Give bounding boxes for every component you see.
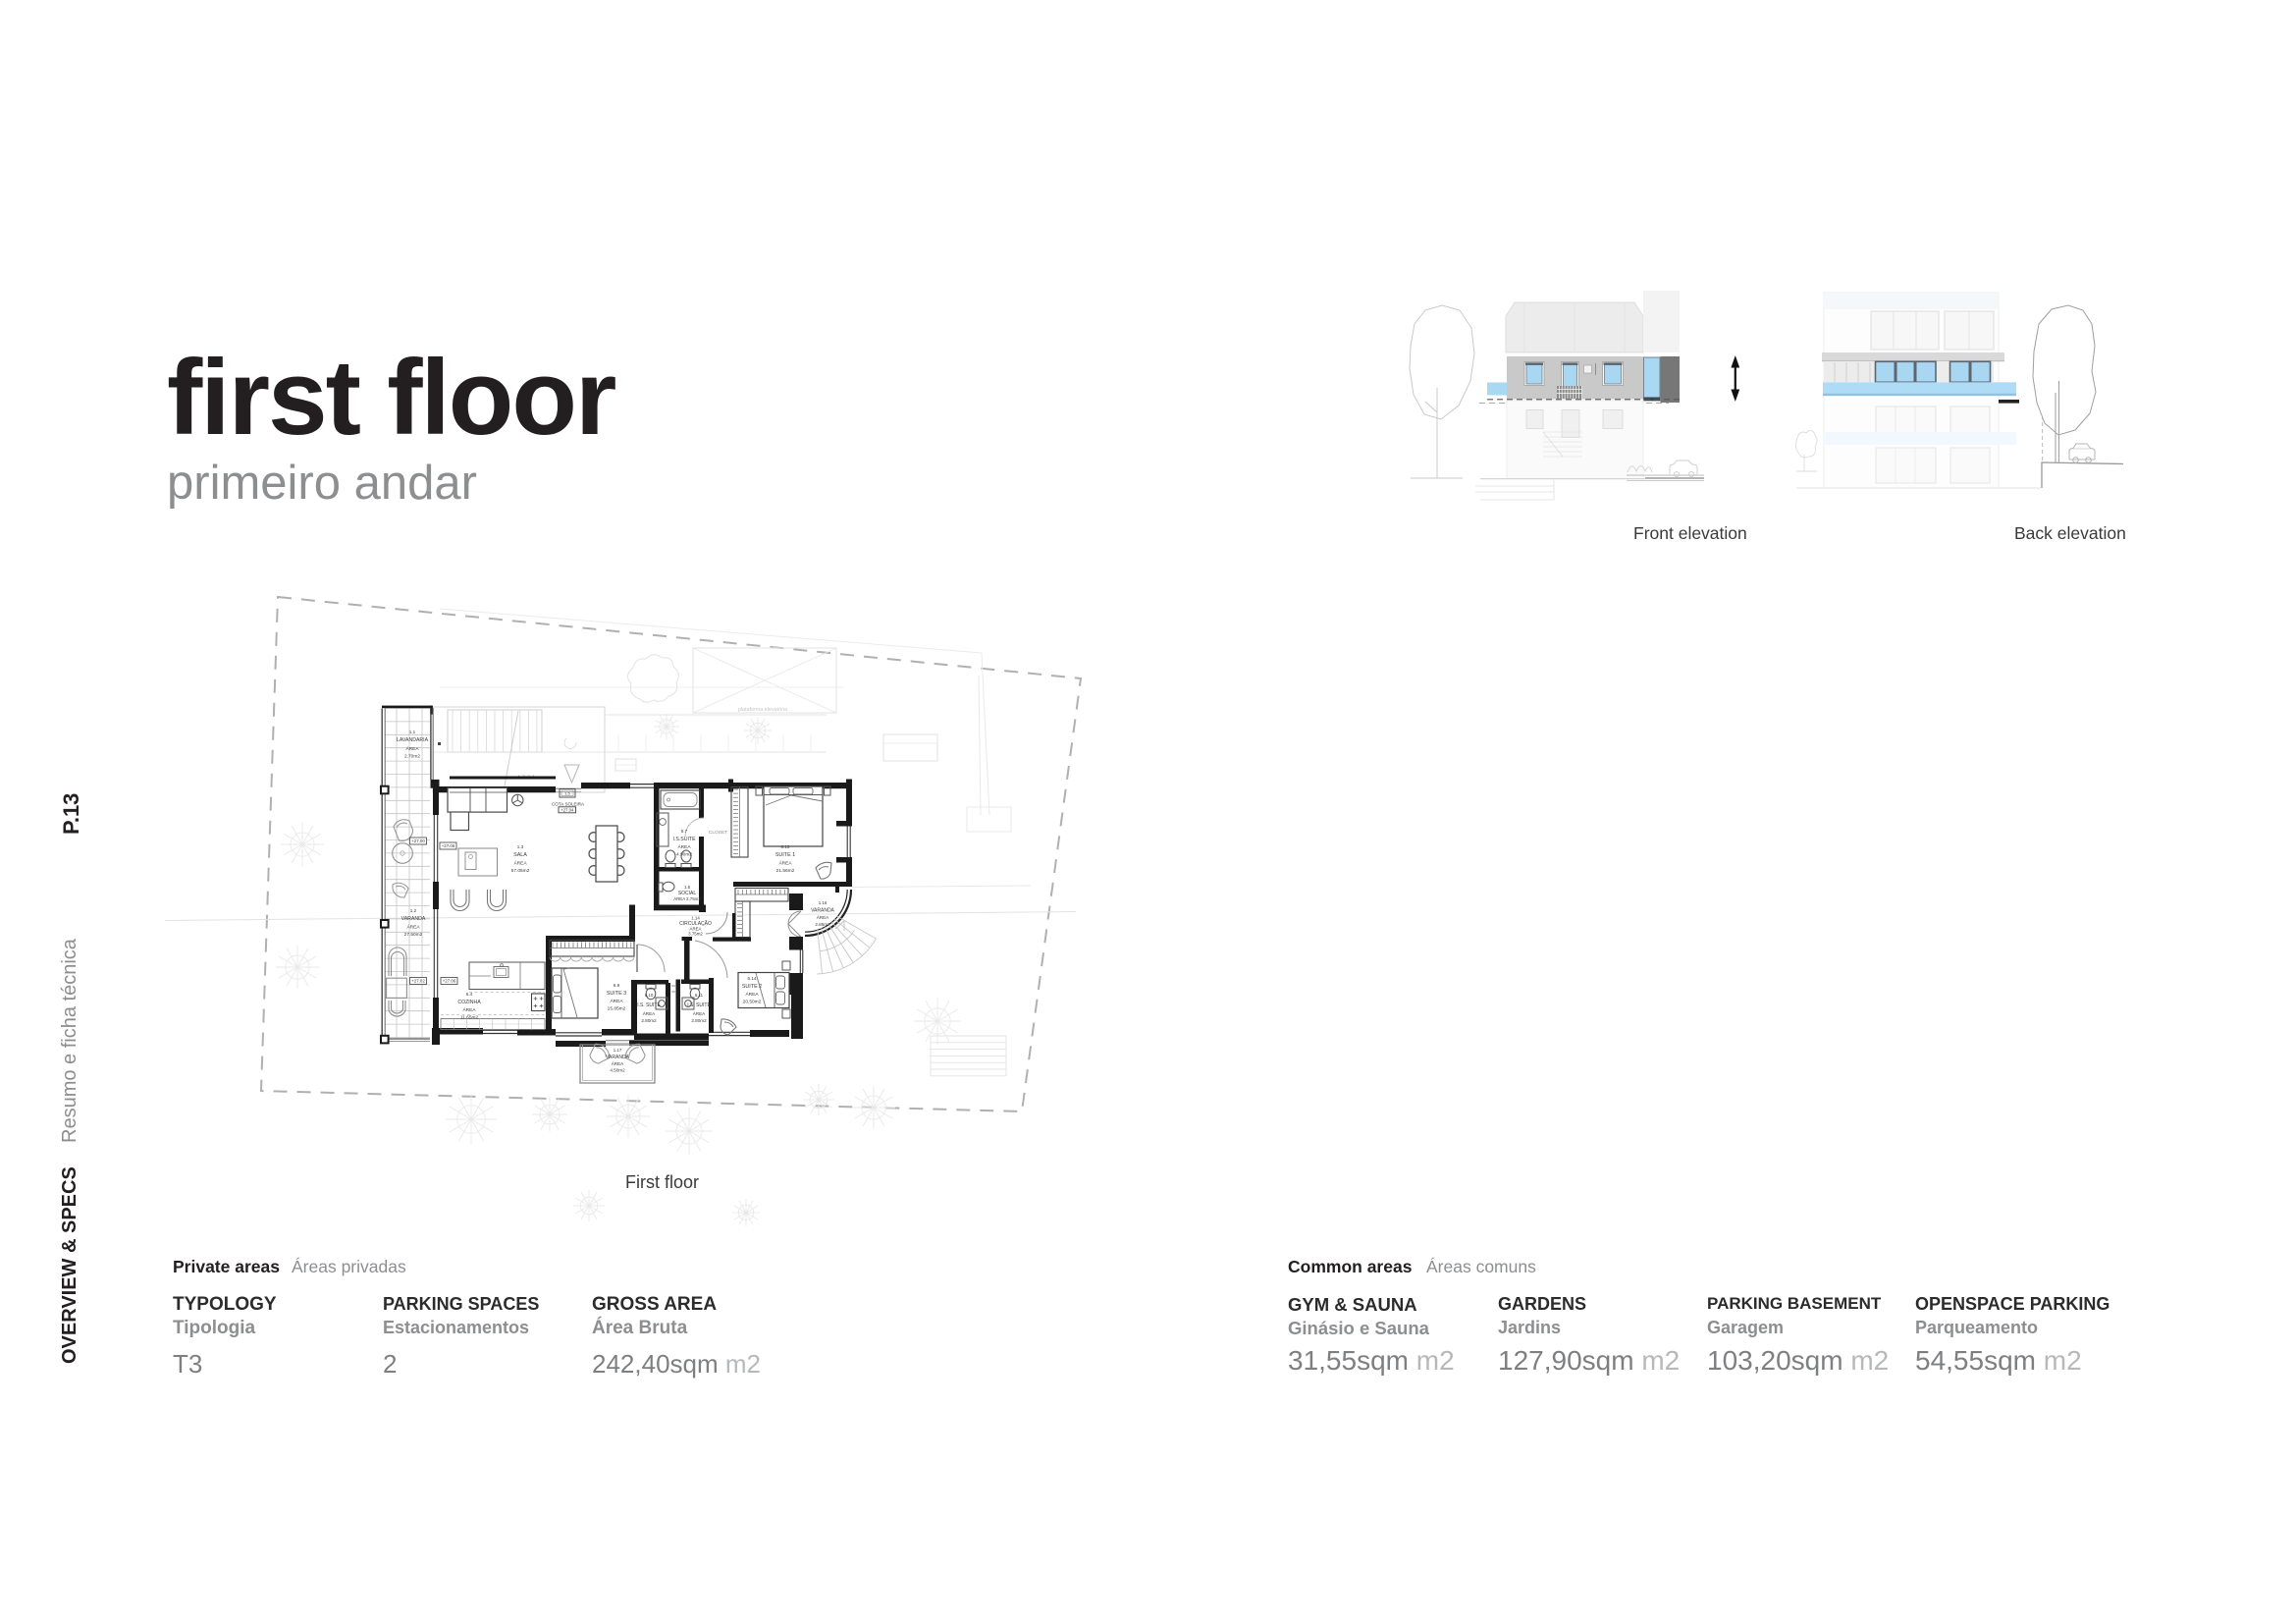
svg-text:4.90m2: 4.90m2 [676,852,692,858]
svg-text:I.S. SUITE: I.S. SUITE [687,1002,711,1008]
svg-text:VARANDA: VARANDA [401,916,426,922]
svg-text:6.10: 6.10 [645,993,654,998]
svg-text:ÁREA: ÁREA [610,998,623,1004]
svg-text:ÁREA: ÁREA [643,1010,656,1016]
svg-text:+27.02: +27.02 [411,979,425,984]
svg-text:VARANDA: VARANDA [811,908,834,914]
svg-text:6.14: 6.14 [748,976,757,981]
svg-text:1.3: 1.3 [517,844,524,849]
svg-text:1.5: 1.5 [684,885,691,890]
svg-text:ÁREA: ÁREA [677,843,691,850]
svg-text:ÁREA: ÁREA [745,991,759,998]
svg-text:ÁREA: ÁREA [693,1010,706,1016]
svg-text:11.65m2: 11.65m2 [460,1015,479,1021]
svg-text:6.13: 6.13 [781,844,790,849]
svg-text:plataforma elevatória: plataforma elevatória [738,707,787,713]
svg-text:4.50m2: 4.50m2 [610,1068,625,1073]
svg-text:COTA SOLEIRA: COTA SOLEIRA [552,801,584,806]
svg-text:ÁREA: ÁREA [405,745,419,752]
svg-text:SUITE 1: SUITE 1 [775,852,795,858]
svg-text:ÁREA 2.75m2: ÁREA 2.75m2 [673,896,701,901]
svg-text:I.S.SUITE: I.S.SUITE [672,837,696,842]
svg-text:COZINHA: COZINHA [457,1000,481,1005]
svg-text:ÁREA: ÁREA [817,914,829,920]
svg-text:2.80m2: 2.80m2 [641,1018,657,1023]
svg-text:3.75m2: 3.75m2 [688,932,703,937]
svg-text:ÁREA: ÁREA [462,1006,476,1013]
svg-text:1.2: 1.2 [410,908,417,913]
svg-text:+27.04: +27.04 [561,808,574,813]
svg-text:+27.00: +27.00 [411,839,425,843]
svg-text:21.56m2: 21.56m2 [776,868,795,874]
svg-text:VARANDA: VARANDA [606,1055,629,1060]
svg-text:6.9: 6.9 [614,983,620,988]
svg-text:20.50m2: 20.50m2 [743,1000,762,1005]
svg-text:2.80m2: 2.80m2 [691,1018,707,1023]
svg-text:2.85m2: 2.85m2 [815,922,830,927]
svg-text:+27.06: +27.06 [442,843,455,848]
svg-text:1.16: 1.16 [819,900,828,905]
svg-text:LAVANDARIA: LAVANDARIA [397,737,429,743]
svg-text:ÁREA: ÁREA [406,924,420,931]
svg-text:+27.06: +27.06 [443,979,456,984]
svg-text:ÁREA: ÁREA [612,1060,624,1066]
svg-text:SUITE 3: SUITE 3 [607,991,626,997]
svg-text:CLOSET: CLOSET [709,830,727,836]
svg-text:ÁREA: ÁREA [513,860,527,867]
svg-text:SALA: SALA [513,852,527,858]
svg-text:1.14: 1.14 [691,916,700,921]
svg-text:SOCIAL: SOCIAL [678,891,697,896]
svg-text:1.5: 1.5 [564,791,570,796]
svg-text:15.85m2: 15.85m2 [608,1006,626,1012]
svg-text:6.4: 6.4 [466,992,473,997]
svg-text:1.17: 1.17 [614,1048,622,1053]
svg-text:6.11: 6.11 [695,993,704,998]
svg-text:2.70m2: 2.70m2 [404,754,420,760]
svg-text:I.S. SUITE: I.S. SUITE [637,1002,661,1008]
svg-text:6.7: 6.7 [681,829,688,834]
svg-text:SUITE 2: SUITE 2 [742,984,762,990]
svg-text:27.50m2: 27.50m2 [404,932,423,938]
svg-text:57.05m2: 57.05m2 [511,868,530,874]
svg-text:1.1: 1.1 [409,730,416,734]
svg-text:ÁREA: ÁREA [778,860,792,867]
